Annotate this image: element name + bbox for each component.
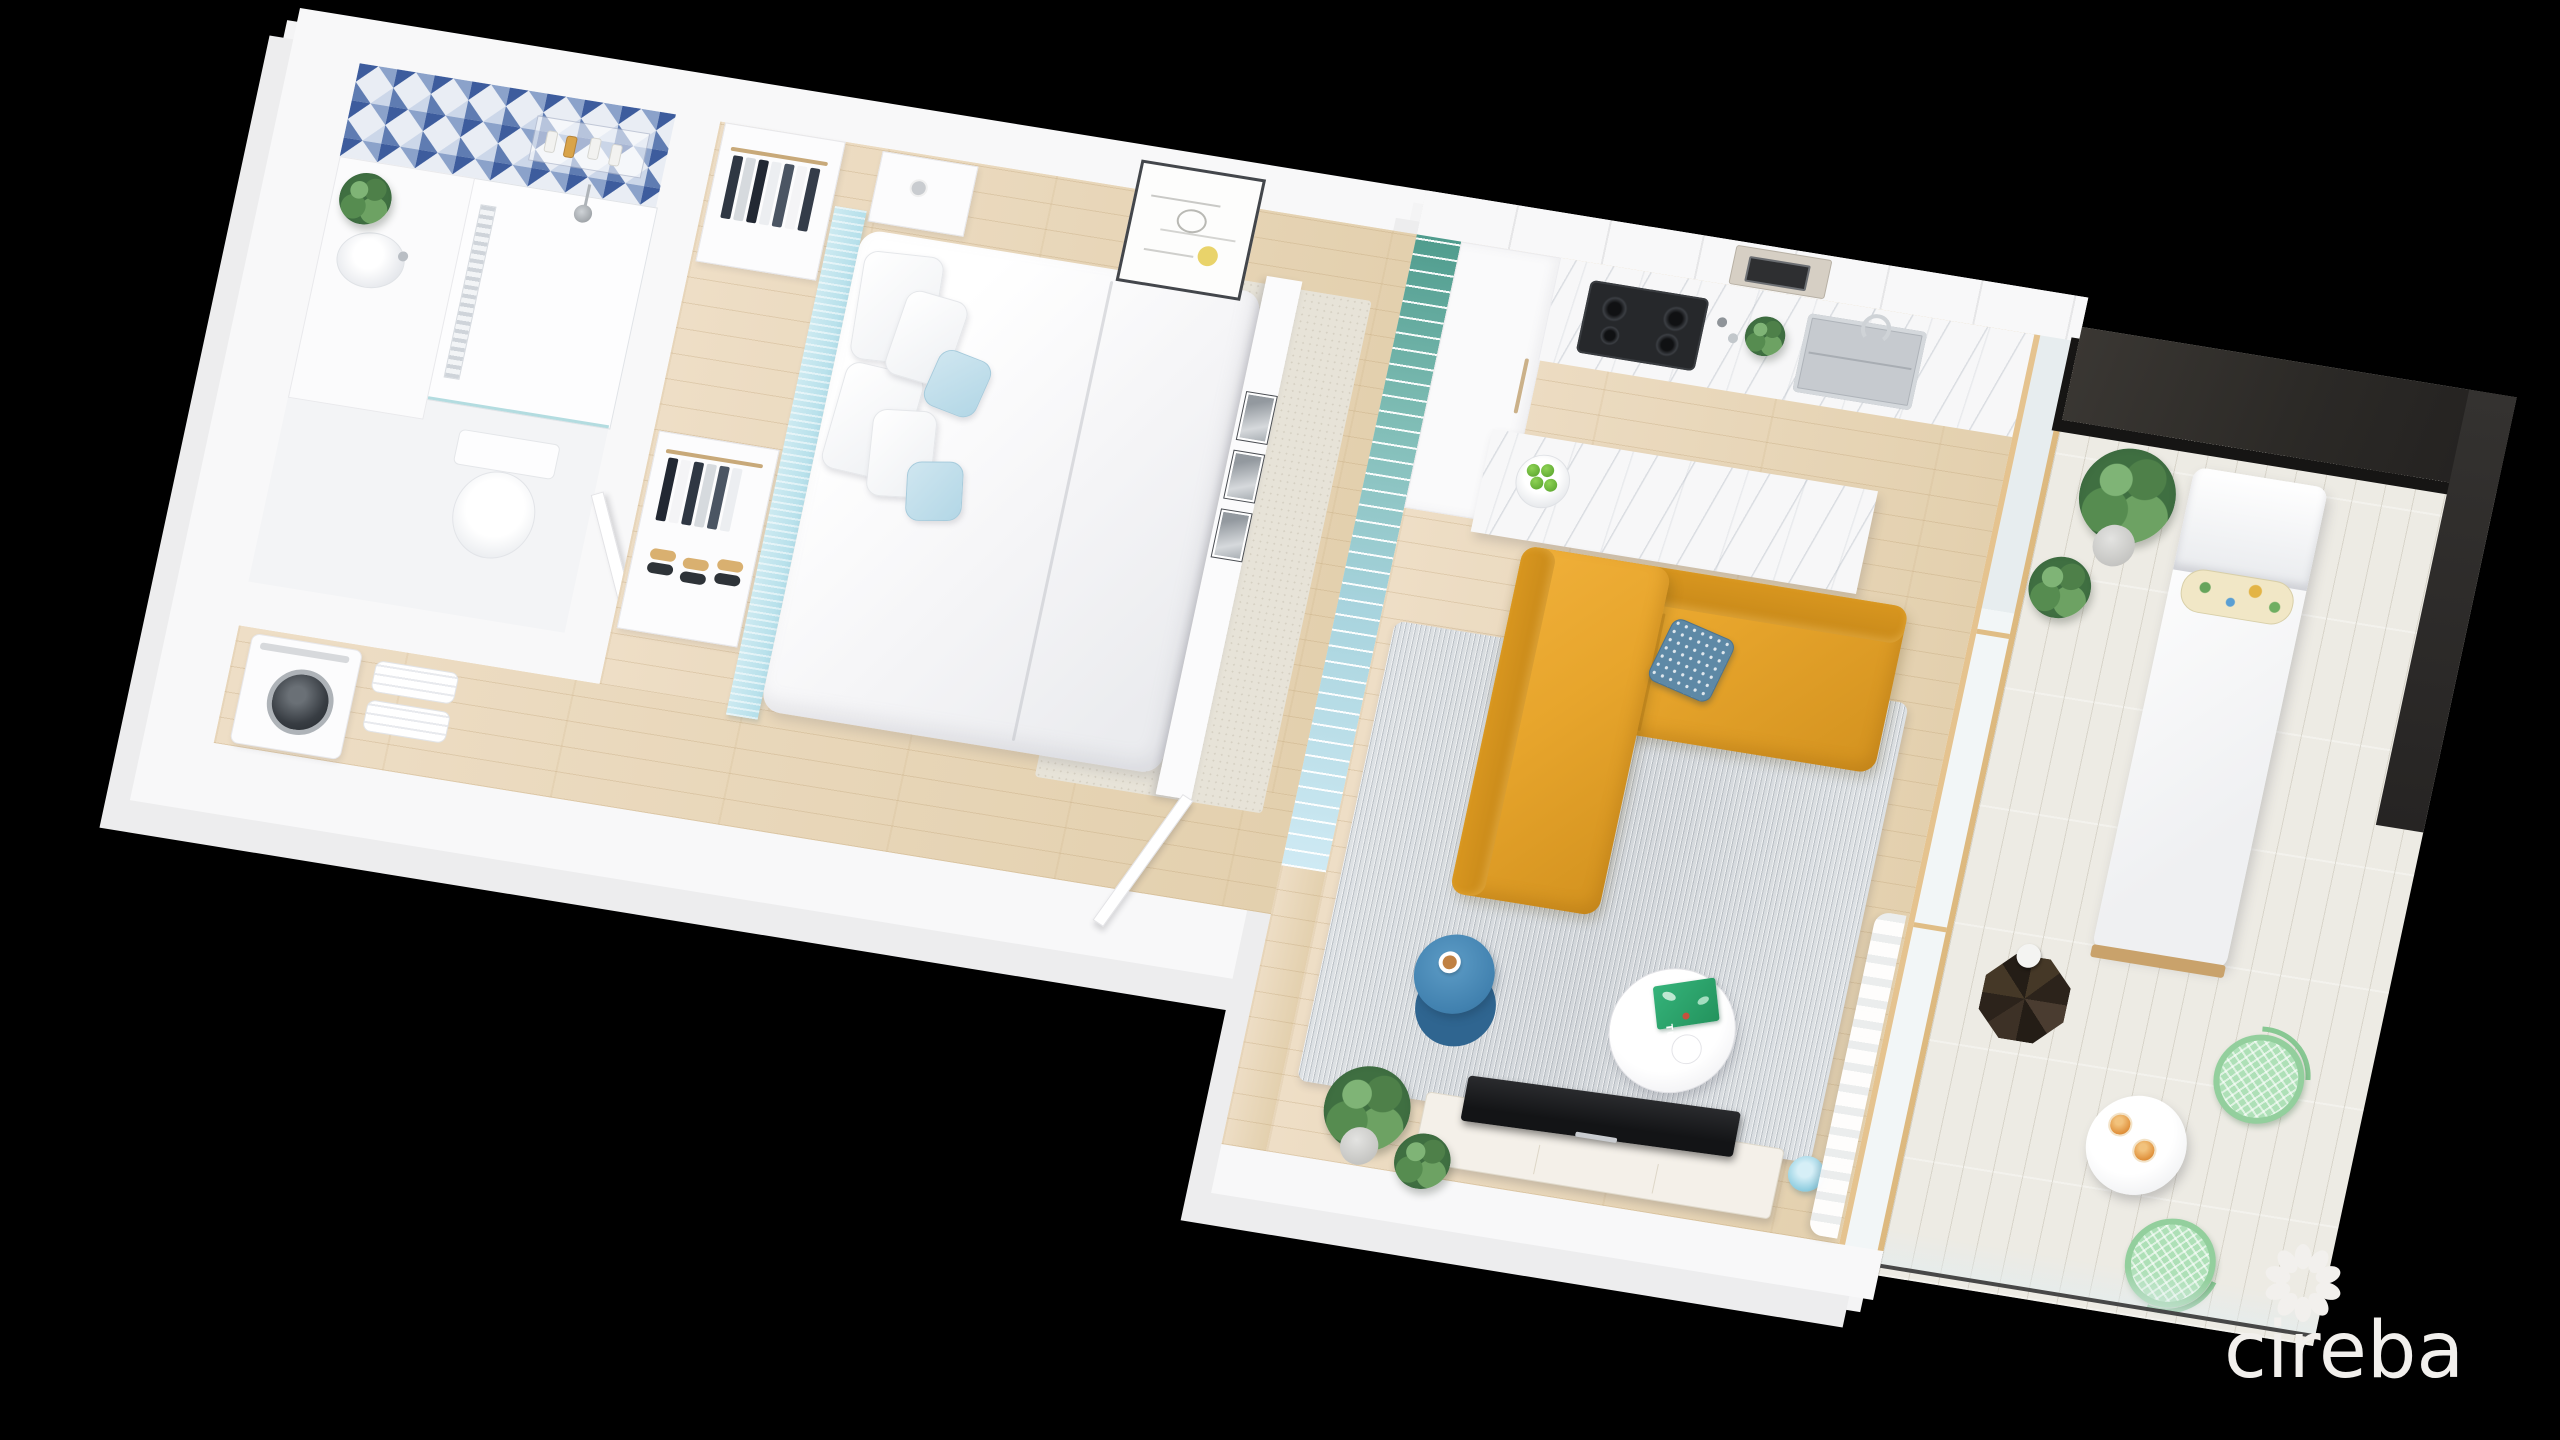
sink-divider [1808,352,1911,371]
book-berry-art [1682,1012,1690,1020]
shampoo-bottle [543,130,558,153]
art-line [1144,248,1194,258]
coffee [1441,954,1458,970]
microwave-window [1744,256,1811,291]
door-mullion [1913,922,1947,932]
book-leaf-art [1661,990,1677,1002]
green-book: TULUM [1653,977,1720,1029]
art-yellow-dot [1196,245,1220,268]
lime [1529,476,1545,491]
shoe-pair [682,557,710,572]
shoe-pair [716,559,744,574]
shoe-pair [649,548,677,563]
console-seam [1533,1145,1540,1175]
book-leaf-art [1696,995,1710,1007]
soap-bottle [587,137,602,160]
lotion-bottle [608,144,623,167]
apartment-plan: TULUM [84,8,2533,1377]
art-line [1151,194,1221,207]
lime [1543,478,1559,493]
brand-watermark: cireba [2224,1244,2524,1414]
lime [1526,463,1542,478]
floor-plan-render: TULUM [0,0,2560,1440]
brand-name: cireba [2224,1306,2464,1396]
hanging-clothes [720,155,820,232]
lime [1540,463,1556,478]
console-seam [1652,1164,1659,1194]
wall-art-line-drawing [1116,159,1267,300]
accent-pillow-blue [905,461,965,521]
door-mullion [1976,629,2010,639]
hanging-clothes [655,457,743,532]
amber-bottle [562,135,577,158]
